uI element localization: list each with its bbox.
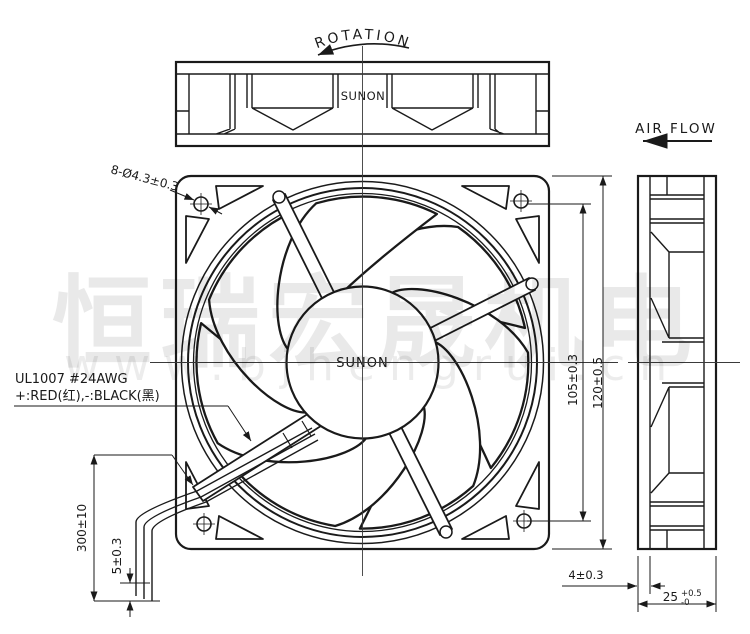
- dim-depth-tol-lower: -0: [681, 598, 689, 608]
- airflow-label: AIR FLOW: [635, 121, 717, 137]
- hole-callout: 8-Ø4.3±0.3: [109, 162, 180, 194]
- dim-flange: 4±0.3: [568, 568, 603, 582]
- dim-lead-strip: 5±0.3: [110, 538, 124, 575]
- dim-frame-size: 120±0.5: [591, 357, 605, 409]
- front-view: [136, 150, 571, 601]
- top-view-brand-text: SUNON: [341, 89, 385, 103]
- fan-engineering-drawing: SUNON ROTATION: [0, 0, 750, 634]
- wire-spec-line2: +:RED(红),-:BLACK(黑): [15, 388, 160, 404]
- rotation-label: ROTATION: [313, 27, 413, 52]
- dim-depth: 25: [663, 590, 678, 604]
- dim-lead-length: 300±10: [75, 504, 89, 552]
- dim-hole-pitch: 105±0.3: [566, 354, 580, 406]
- drawing-svg: SUNON ROTATION: [0, 0, 750, 634]
- wire-spec-line1: UL1007 #24AWG: [15, 372, 128, 387]
